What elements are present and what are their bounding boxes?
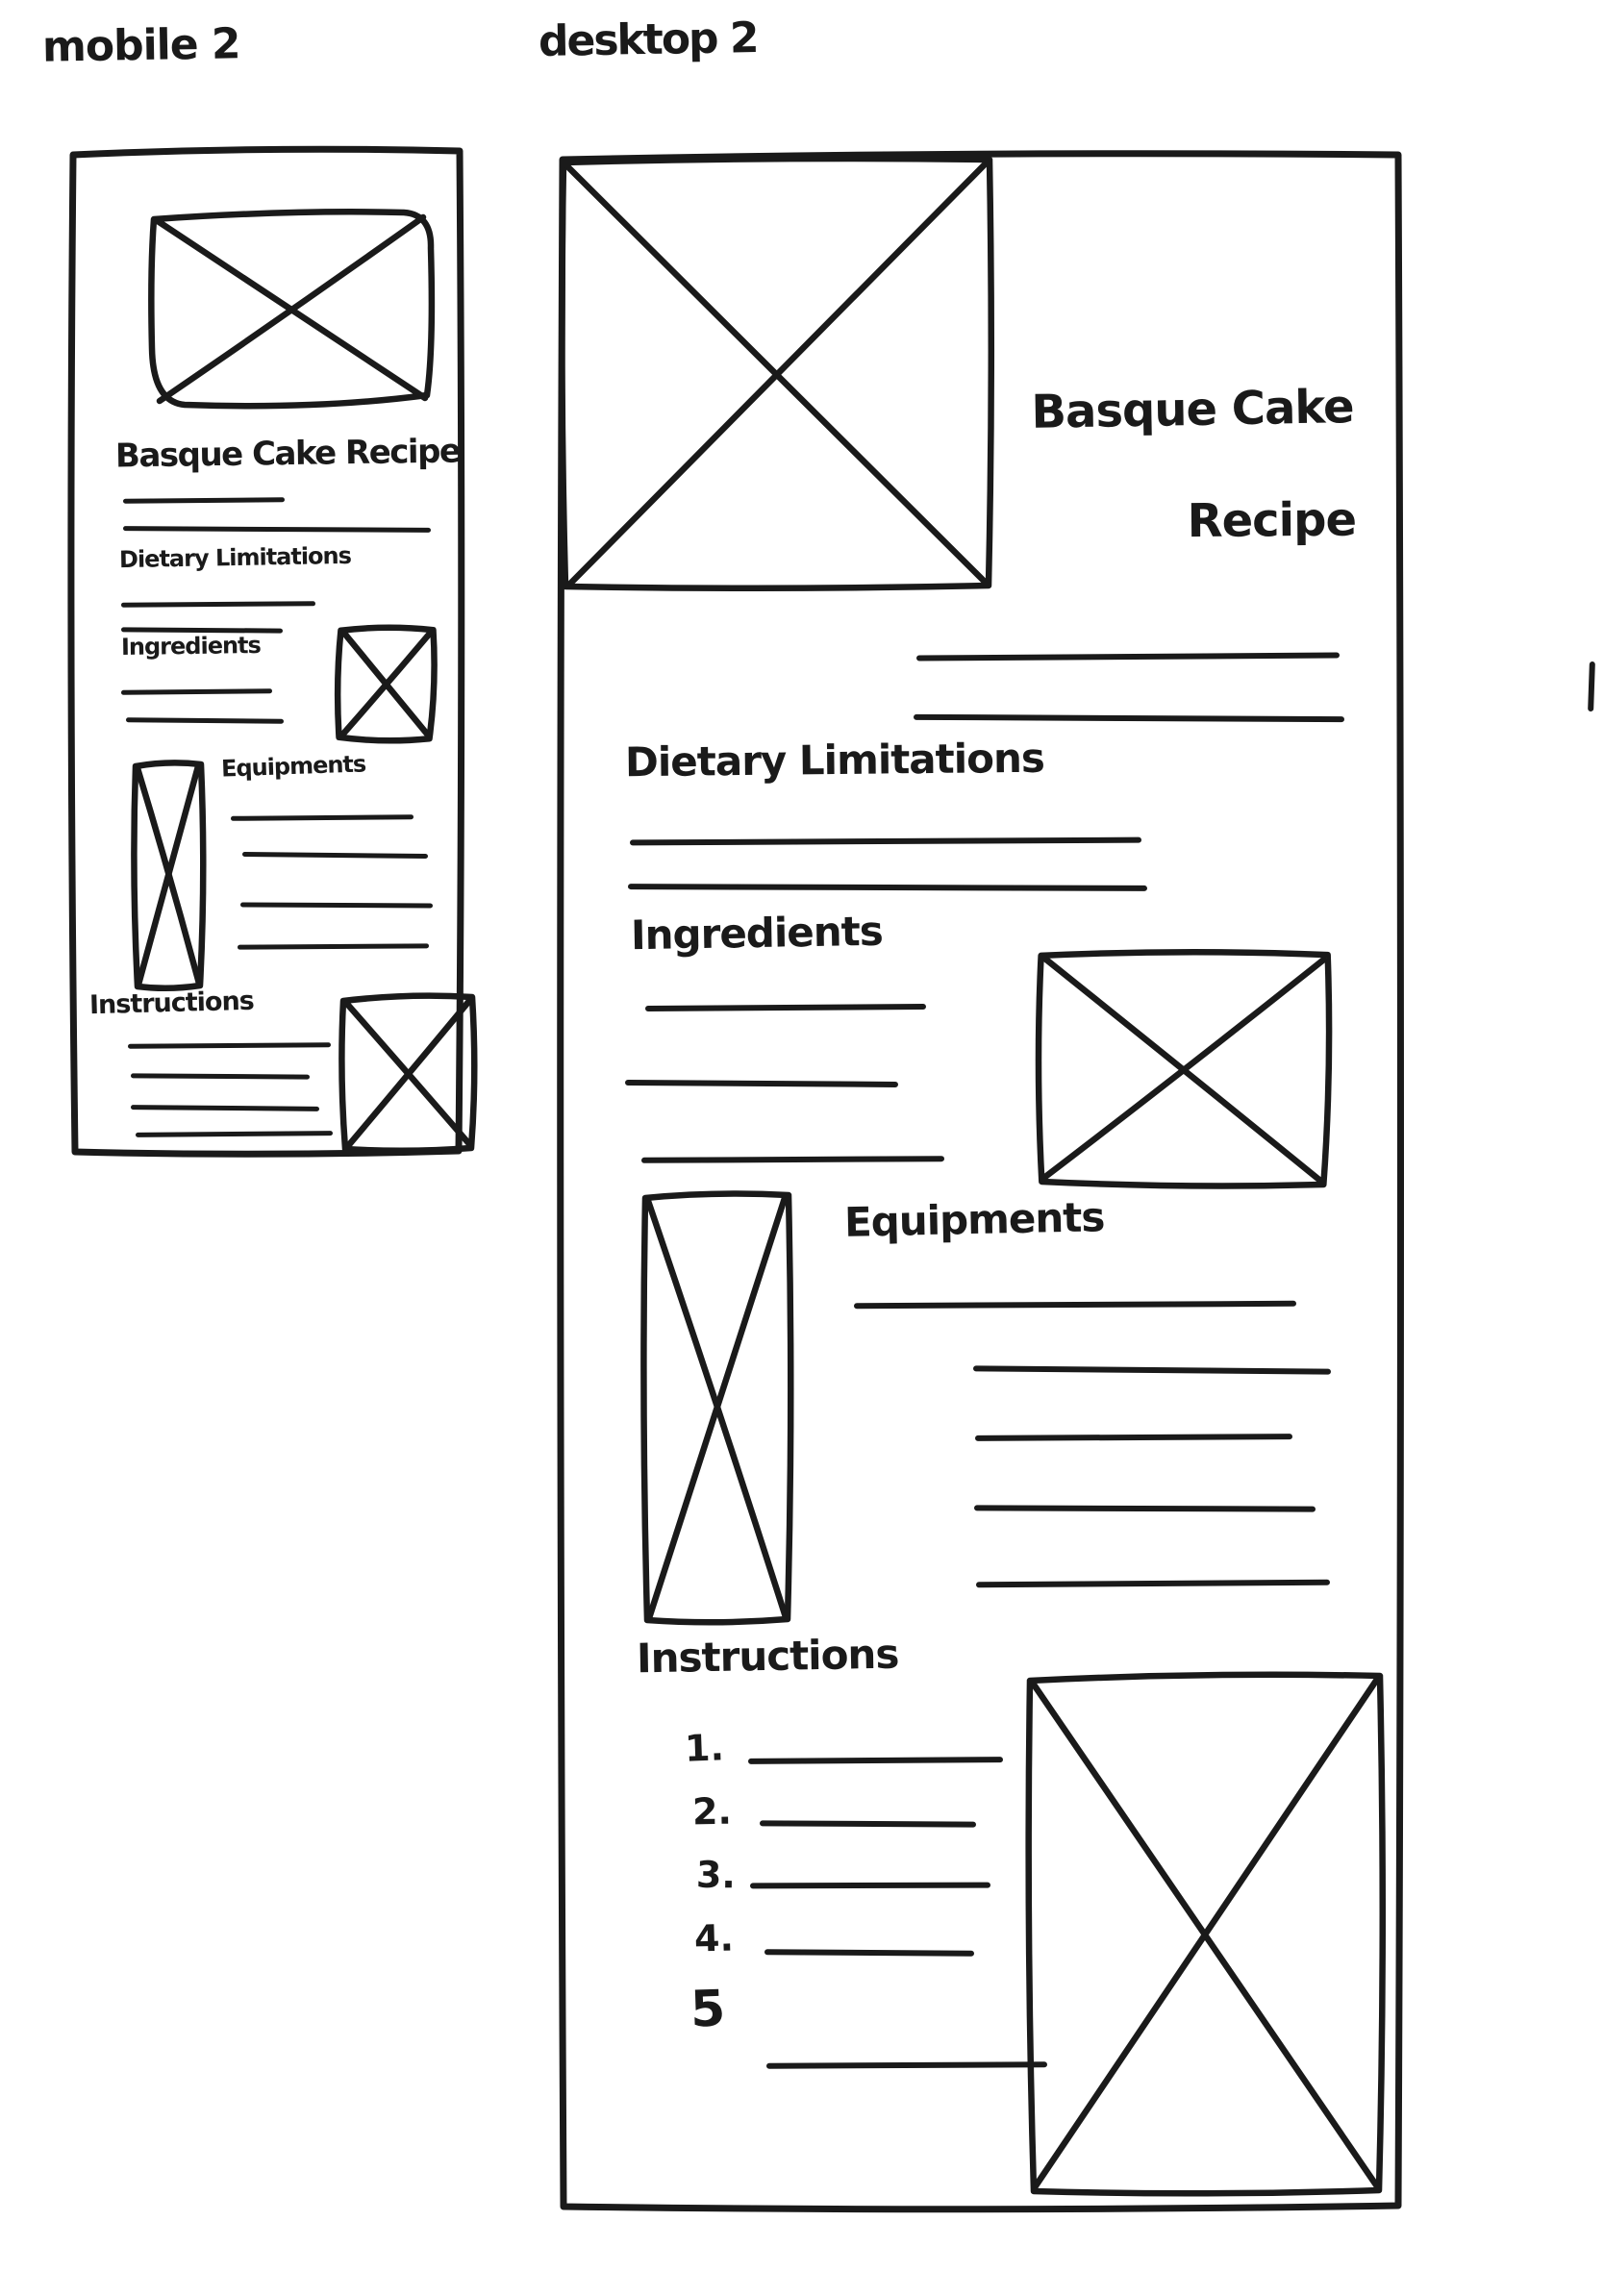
mobile-section-dietary-heading: Dietary Limitations bbox=[119, 542, 351, 573]
image-placeholder-icon bbox=[555, 151, 997, 595]
instruction-item-number: 4. bbox=[693, 1916, 734, 1959]
desktop-title-line1: Basque Cake bbox=[1029, 380, 1357, 439]
desktop-hero-image-placeholder bbox=[555, 151, 997, 595]
desktop-ingredients-image-placeholder bbox=[1028, 942, 1340, 1194]
mobile-equipments-image-placeholder bbox=[128, 757, 209, 993]
instruction-item-number: 1. bbox=[684, 1726, 724, 1769]
desktop-wireframe-label: desktop 2 bbox=[539, 13, 758, 66]
image-placeholder-icon bbox=[128, 757, 209, 993]
instruction-item-number: 3. bbox=[696, 1854, 737, 1897]
text-line-placeholder bbox=[750, 1883, 990, 1889]
mobile-ingredients-image-placeholder bbox=[330, 620, 440, 748]
image-placeholder-icon bbox=[330, 620, 440, 748]
text-line-placeholder bbox=[974, 1505, 1316, 1511]
instruction-item-number: 5 bbox=[689, 1980, 726, 2038]
mobile-section-equipments-heading: Equipments bbox=[221, 750, 366, 782]
text-line-placeholder bbox=[760, 1820, 976, 1827]
desktop-instructions-image-placeholder bbox=[1020, 1667, 1390, 2200]
mobile-section-ingredients-heading: Ingredients bbox=[121, 632, 261, 661]
stray-pen-mark bbox=[1588, 661, 1595, 711]
image-placeholder-icon bbox=[637, 1186, 796, 1629]
image-placeholder-icon bbox=[144, 204, 439, 413]
desktop-section-dietary-heading: Dietary Limitations bbox=[625, 735, 1044, 786]
image-placeholder-icon bbox=[1028, 942, 1340, 1194]
image-placeholder-icon bbox=[336, 989, 480, 1156]
desktop-title-line2: Recipe bbox=[1029, 492, 1364, 549]
mobile-section-instructions-heading: Instructions bbox=[89, 986, 255, 1020]
wireframe-sketch-canvas: mobile 2 Basque Cake Recipe Dietary Limi… bbox=[0, 0, 1604, 2296]
text-line-placeholder bbox=[240, 902, 433, 908]
desktop-equipments-image-placeholder bbox=[637, 1186, 796, 1629]
mobile-instructions-image-placeholder bbox=[336, 989, 480, 1156]
desktop-section-equipments-heading: Equipments bbox=[844, 1193, 1105, 1246]
desktop-section-instructions-heading: Instructions bbox=[637, 1631, 899, 1683]
mobile-title: Basque Cake Recipe bbox=[115, 432, 461, 475]
mobile-hero-image-placeholder bbox=[144, 204, 439, 413]
mobile-wireframe-label: mobile 2 bbox=[42, 19, 240, 72]
image-placeholder-icon bbox=[1020, 1667, 1390, 2200]
instruction-item-number: 2. bbox=[692, 1790, 733, 1834]
desktop-section-ingredients-heading: Ingredients bbox=[631, 908, 884, 960]
